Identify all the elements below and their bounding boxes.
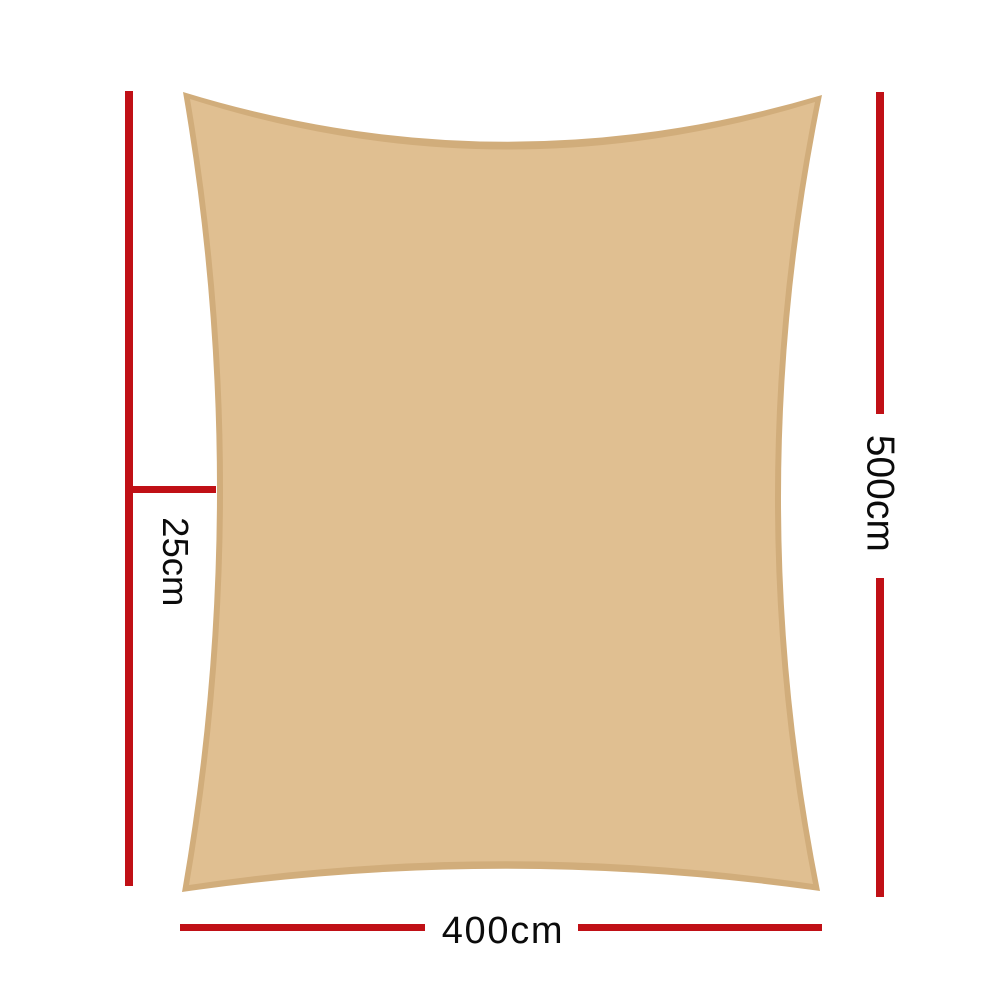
svg-text:400cm: 400cm (442, 910, 565, 952)
svg-text:500cm: 500cm (859, 435, 902, 552)
svg-text:25cm: 25cm (155, 517, 196, 606)
